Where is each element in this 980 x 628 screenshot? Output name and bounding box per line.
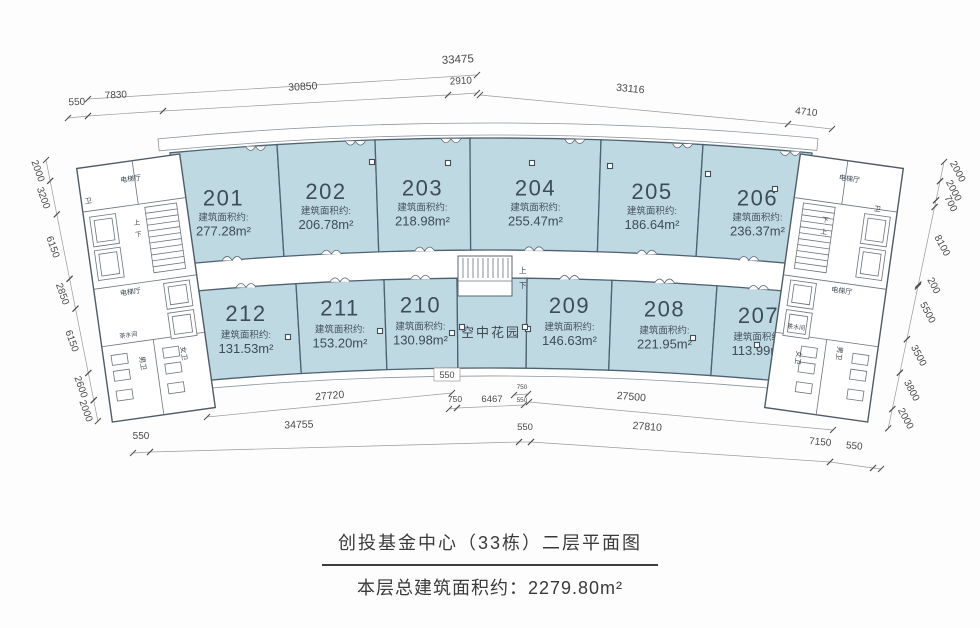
plan-shape	[892, 373, 900, 409]
room-area-value: 218.98m²	[395, 214, 451, 229]
plan-shape	[43, 157, 49, 163]
room-area-label: 建筑面积约:	[198, 211, 248, 223]
dimension-label: 6150	[62, 329, 80, 354]
plan-shape	[847, 389, 864, 401]
plan-shape	[457, 405, 524, 408]
room-number: 208	[644, 297, 685, 322]
plan-shape	[941, 159, 947, 165]
plan-shape	[888, 409, 892, 428]
plan-shape	[480, 95, 788, 124]
room-number: 202	[305, 179, 346, 204]
plan-shape	[849, 369, 866, 381]
plan-shape	[50, 181, 57, 215]
plan-shape	[95, 418, 101, 424]
room-202: 202建筑面积约:206.78m²	[277, 140, 379, 256]
plan-shape	[788, 124, 832, 129]
room-number: 203	[402, 176, 443, 201]
room-number: 204	[515, 175, 556, 200]
column-marker	[608, 164, 613, 169]
column-marker	[460, 325, 465, 330]
plan-shape	[99, 252, 120, 276]
room-area-value: 277.28m²	[196, 223, 252, 238]
dimension-label: 5500	[917, 300, 937, 325]
room-number: 209	[549, 293, 590, 318]
plan-shape	[918, 207, 934, 285]
room-203: 203建筑面积约:218.98m²	[375, 138, 471, 252]
plan-shape	[514, 394, 528, 395]
dimension-label: 3500	[908, 343, 928, 368]
plan-shape	[163, 346, 180, 358]
dimension-label: 750	[517, 384, 528, 391]
plan-shape	[932, 204, 938, 210]
dimension-label: 550	[68, 97, 86, 109]
plan-shape	[830, 462, 873, 468]
room-area-label: 建筑面积约:	[639, 325, 689, 337]
column-marker	[706, 172, 711, 177]
dimension-label: 550	[517, 422, 533, 433]
room-212: 212建筑面积约:131.53m²	[196, 284, 301, 381]
plan-shape	[897, 370, 903, 376]
plan-shape	[904, 336, 910, 342]
dimension-label: 27810	[632, 420, 662, 434]
dimension-label: 2910	[449, 75, 472, 87]
plan-shape	[111, 353, 128, 365]
column-marker	[755, 343, 760, 348]
room-area-value: 221.95m²	[637, 337, 693, 352]
room-area-value: 153.20m²	[313, 335, 369, 350]
plan-shape	[940, 162, 944, 181]
dimension-label: 27500	[616, 390, 646, 405]
room-area-label: 建筑面积约:	[315, 323, 365, 335]
floor-plan-page: 201建筑面积约:277.28m²202建筑面积约:206.78m²203建筑面…	[0, 0, 980, 628]
plan-shape	[47, 178, 53, 184]
plan-shape	[54, 211, 60, 217]
plan-shape	[168, 284, 188, 304]
plan-shape	[88, 75, 477, 99]
stair-up-label: 上	[519, 266, 527, 275]
total-area: 本层总建筑面积约：2279.80m²	[0, 574, 980, 600]
plan-title: 创投基金中心（33栋）二层平面图	[0, 529, 980, 555]
room-211: 211建筑面积约:153.20m²	[296, 280, 387, 374]
dimension-label: 7150	[809, 436, 833, 449]
room-area-value: 206.78m²	[299, 217, 355, 232]
column-marker	[450, 331, 455, 336]
plan-shape	[70, 279, 76, 309]
column-marker	[530, 161, 535, 166]
room-number: 201	[203, 185, 244, 210]
dimension-label: 750	[448, 394, 462, 404]
plan-shape	[67, 276, 73, 282]
dimension-label: 200	[924, 276, 942, 296]
plan-shape	[94, 218, 115, 242]
column-marker	[286, 335, 291, 340]
dimension-label: 3200	[34, 186, 52, 211]
stair-icon	[458, 256, 512, 296]
dimension-label: 6467	[481, 394, 502, 405]
plan-shape	[113, 369, 130, 381]
column-marker	[691, 336, 696, 341]
room-area-label: 建筑面积约:	[510, 201, 560, 213]
room-number: 206	[737, 186, 778, 211]
plan-shape	[116, 389, 133, 401]
dimension-label: 33475	[442, 53, 475, 67]
plan-shape	[168, 382, 185, 394]
dimensions-top: 334755507830308502910331164710	[65, 53, 835, 132]
dimension-label: 6150	[43, 235, 61, 260]
plan-shape	[907, 287, 918, 340]
room-area-value: 236.37m²	[730, 224, 786, 239]
plan-shape	[165, 362, 182, 374]
plan-shape	[900, 339, 907, 373]
plan-shape	[865, 218, 886, 242]
plan-shape	[873, 468, 881, 469]
dimension-label: 3800	[901, 378, 921, 403]
room-area-label: 建筑面积约:	[301, 205, 351, 217]
dimension-label: 34755	[284, 418, 314, 431]
dimensions-bottom-outer: 55034755550278107150550	[130, 418, 884, 472]
plan-shape	[88, 373, 93, 400]
plan-shape	[163, 95, 448, 111]
plan-shape	[936, 181, 940, 200]
plan-shape	[885, 425, 891, 431]
plan-shape	[795, 382, 812, 394]
room-area-label: 建筑面积约:	[544, 321, 594, 333]
core-label: 卫	[873, 205, 881, 214]
room-209: 209建筑面积约:146.63m²	[526, 278, 612, 370]
room-204: 204建筑面积约:255.47m²	[470, 138, 601, 252]
plan-shape	[73, 306, 79, 312]
plan-shape	[88, 111, 163, 116]
room-205: 205建筑面积约:186.64m²	[597, 140, 703, 257]
room-210: 210建筑面积约:130.98m²	[384, 278, 458, 369]
room-area-label: 建筑面积约:	[395, 321, 445, 333]
dimension-label: 550	[845, 440, 863, 452]
room-number: 207	[738, 303, 779, 328]
dimension-label: 550	[439, 370, 454, 380]
dimension-label: 550	[517, 397, 528, 404]
room-number: 205	[631, 179, 672, 204]
plan-shape	[172, 314, 192, 334]
room-208: 208建筑面积约:221.95m²	[609, 280, 717, 375]
plan-shape	[531, 442, 830, 462]
stair-down-label: 下	[519, 281, 527, 290]
dimension-label: 2600	[71, 375, 89, 400]
dimension-label: 4710	[795, 106, 819, 119]
plan-shape	[852, 353, 869, 365]
dimension-label: 2000	[895, 406, 915, 431]
room-area-value: 131.53m²	[219, 341, 275, 356]
dimension-label: 550	[133, 431, 150, 442]
plan-shape	[150, 442, 519, 452]
plan-shape	[133, 452, 150, 453]
plan-shape	[937, 178, 943, 184]
garden-label: 空中花园	[461, 325, 521, 340]
plan-shape	[889, 406, 895, 412]
core-label: 卫	[84, 197, 92, 206]
plan-shape	[792, 284, 812, 304]
room-number: 210	[400, 293, 441, 318]
room-number: 211	[320, 295, 360, 320]
title-block: 创投基金中心（33栋）二层平面图 本层总建筑面积约：2279.80m²	[0, 529, 980, 600]
title-divider	[322, 564, 658, 566]
column-marker	[773, 187, 778, 192]
dimension-label: 2850	[53, 282, 71, 307]
dimension-label: 33116	[616, 82, 646, 97]
room-area-value: 130.98m²	[393, 333, 449, 348]
plan-shape	[448, 93, 477, 95]
plan-shape	[85, 370, 91, 376]
column-marker	[523, 325, 528, 330]
column-marker	[370, 160, 375, 165]
room-number: 212	[225, 301, 266, 326]
plan-shape	[91, 397, 97, 403]
column-marker	[446, 161, 451, 166]
room-area-label: 建筑面积约:	[627, 205, 677, 217]
room-area-label: 建筑面积约:	[732, 212, 782, 224]
room-area-value: 186.64m²	[625, 217, 681, 232]
dimension-label: 8100	[932, 233, 952, 258]
column-marker	[378, 329, 383, 334]
room-area-value: 255.47m²	[508, 213, 564, 228]
room-area-label: 建筑面积约:	[397, 202, 447, 214]
plan-shape	[933, 197, 939, 203]
plan-shape	[860, 252, 881, 276]
room-area-value: 146.63m²	[542, 333, 598, 348]
dimension-label: 7830	[104, 89, 127, 101]
room-area-label: 建筑面积约:	[221, 329, 271, 341]
dimension-label: 27720	[315, 389, 345, 404]
plan-shape	[800, 346, 817, 358]
plan-shape	[68, 116, 88, 118]
dimension-label: 30850	[288, 80, 318, 94]
